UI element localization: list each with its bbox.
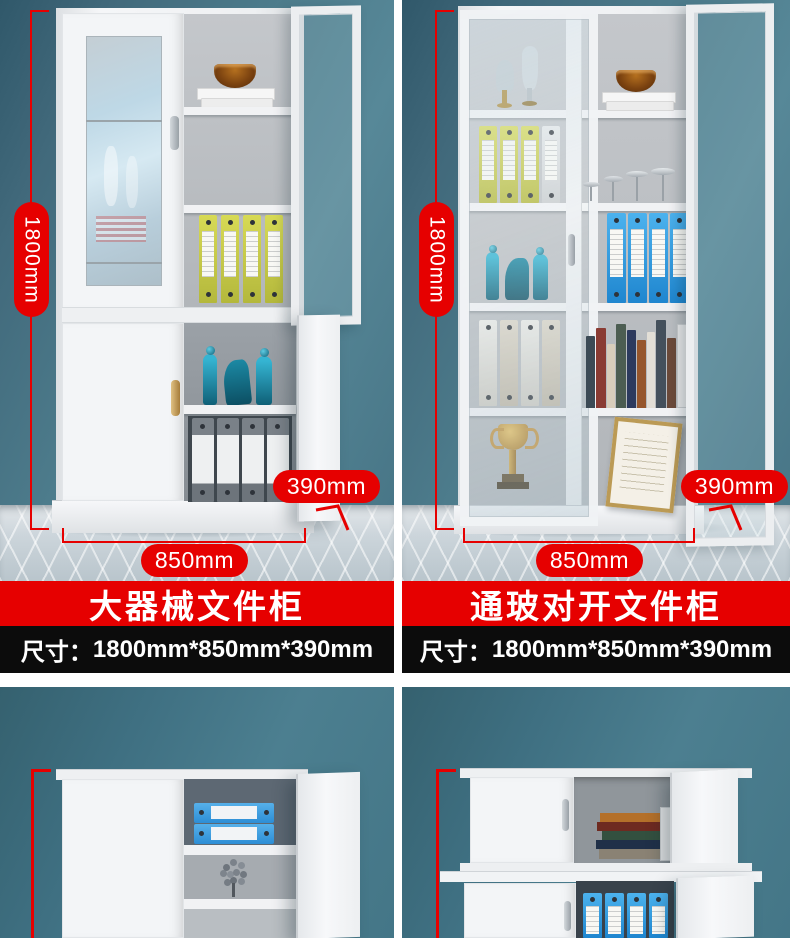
product-photo-partial-left xyxy=(0,687,394,938)
book xyxy=(596,328,606,408)
decor-dish xyxy=(626,171,648,177)
binder xyxy=(221,215,239,303)
decor-bead-tree-trunk xyxy=(232,883,235,897)
file-holder xyxy=(242,418,264,502)
size-label: 尺寸： xyxy=(420,632,492,667)
glass-reflection-line xyxy=(86,262,162,264)
book-row xyxy=(586,318,688,408)
glass-reflection xyxy=(96,216,146,242)
glass-door-open xyxy=(291,5,361,325)
solid-door-closed xyxy=(464,883,576,938)
chess-piece xyxy=(203,354,217,405)
glass-door-closed xyxy=(460,10,598,526)
product-card-equipment-cabinet: 1800mm 850mm 390mm 大器械文件柜 尺寸： 1800mm*850… xyxy=(0,0,394,673)
size-value: 1800mm*850mm*390mm xyxy=(93,636,373,664)
binder-row-blue xyxy=(583,893,671,938)
decor-dish xyxy=(583,182,600,187)
dimension-tick xyxy=(463,528,465,543)
book xyxy=(647,332,655,408)
box-file-blue xyxy=(194,824,274,844)
book-stack xyxy=(596,813,672,859)
file-holder xyxy=(217,418,239,502)
chess-piece-knob xyxy=(206,346,215,355)
dimension-tick xyxy=(435,528,454,530)
binder xyxy=(627,893,646,938)
decor-stem xyxy=(590,186,592,201)
size-label: 尺寸： xyxy=(21,632,93,667)
binder-row-blue xyxy=(607,213,691,303)
book xyxy=(596,840,666,849)
dimension-label-height: 1800mm xyxy=(14,202,49,317)
cabinet-compartment xyxy=(184,909,296,938)
glass-door-open xyxy=(686,3,774,547)
dimension-line-height xyxy=(436,769,439,938)
binder xyxy=(265,215,283,303)
product-detail-page: 1800mm 850mm 390mm 大器械文件柜 尺寸： 1800mm*850… xyxy=(0,0,790,938)
decor-book xyxy=(606,101,674,111)
decor-stem xyxy=(662,172,664,201)
product-title: 大器械文件柜 xyxy=(89,580,305,628)
cabinet-mid-rail xyxy=(62,307,298,323)
glass-pane xyxy=(86,36,162,286)
solid-door-open xyxy=(670,769,738,870)
door-handle xyxy=(170,116,179,150)
book xyxy=(616,324,626,408)
book xyxy=(627,330,636,408)
vase-silhouette xyxy=(126,156,138,208)
solid-door-closed xyxy=(62,323,184,501)
certificate-frame xyxy=(605,417,682,514)
book xyxy=(637,340,646,408)
size-value: 1800mm*850mm*390mm xyxy=(492,636,772,664)
door-handle xyxy=(562,799,569,831)
box-file-label xyxy=(211,806,257,819)
solid-door-open xyxy=(296,772,360,938)
dimension-label-height: 1800mm xyxy=(419,202,454,317)
binder xyxy=(243,215,261,303)
chess-piece-knob xyxy=(260,348,269,357)
shelf xyxy=(184,405,296,414)
file-holder xyxy=(192,418,214,502)
product-size-banner: 尺寸： 1800mm*850mm*390mm xyxy=(0,626,394,673)
certificate-text-lines xyxy=(619,432,669,494)
product-title-banner: 大器械文件柜 xyxy=(0,581,394,626)
product-title-banner: 通玻对开文件柜 xyxy=(402,581,790,626)
dimension-line-height xyxy=(31,769,34,938)
shelf xyxy=(183,107,295,115)
door-handle xyxy=(564,901,571,931)
binder xyxy=(628,213,647,303)
product-card-glass-cabinet: 1800mm 850mm 390mm 通玻对开文件柜 尺寸： 1800mm*85… xyxy=(402,0,790,673)
dimension-tick xyxy=(62,528,64,543)
decor-bead-tree xyxy=(230,859,237,866)
glass-reflection-line xyxy=(86,120,162,122)
product-size-banner: 尺寸： 1800mm*850mm*390mm xyxy=(402,626,790,673)
binder xyxy=(649,213,668,303)
dimension-tick xyxy=(436,769,456,772)
dimension-line-width xyxy=(463,541,695,543)
binder xyxy=(607,213,626,303)
dimension-line-width xyxy=(62,541,306,543)
book xyxy=(602,831,662,840)
book xyxy=(607,344,615,408)
decor-dish xyxy=(604,176,623,182)
binder xyxy=(649,893,668,938)
depth-indicator-bracket xyxy=(707,503,745,533)
decor-stem xyxy=(612,180,614,201)
dimension-label-width: 850mm xyxy=(536,544,643,577)
product-photo-partial-right xyxy=(402,687,790,938)
dimension-label-depth: 390mm xyxy=(273,470,380,503)
product-title: 通玻对开文件柜 xyxy=(470,580,722,628)
book xyxy=(597,822,663,831)
binder xyxy=(199,215,217,303)
door-handle xyxy=(171,380,180,416)
book xyxy=(656,320,666,408)
cabinet-plinth xyxy=(52,500,314,533)
box-file-label xyxy=(211,827,257,840)
book xyxy=(599,849,663,859)
dimension-tick xyxy=(693,528,695,543)
decor-silver-dishes xyxy=(588,168,678,203)
chess-knight xyxy=(222,359,253,406)
vase-silhouette xyxy=(104,146,118,206)
cabinet-compartment xyxy=(184,855,296,899)
binder xyxy=(583,893,602,938)
dimension-tick xyxy=(30,10,49,12)
box-file-blue xyxy=(194,803,274,823)
book xyxy=(667,338,676,408)
solid-door-open xyxy=(676,876,754,938)
depth-indicator-bracket xyxy=(314,503,352,533)
binder xyxy=(605,893,624,938)
dimension-tick xyxy=(31,769,51,772)
binder-row-yellow xyxy=(199,215,289,303)
dimension-tick xyxy=(435,10,454,12)
cabinet-bottom xyxy=(460,863,752,871)
dimension-tick xyxy=(304,528,306,543)
shelf xyxy=(184,845,296,855)
book xyxy=(600,813,662,822)
dimension-label-width: 850mm xyxy=(141,544,248,577)
dimension-label-depth: 390mm xyxy=(681,470,788,503)
decor-dish xyxy=(651,168,675,175)
door-handle xyxy=(568,234,575,266)
solid-door-closed xyxy=(470,777,574,863)
shelf xyxy=(184,899,296,909)
solid-door-closed xyxy=(62,779,184,938)
decor-stem xyxy=(636,176,638,201)
book xyxy=(586,336,595,408)
dimension-tick xyxy=(30,528,49,530)
shelf xyxy=(183,205,295,213)
chess-piece xyxy=(256,356,272,405)
